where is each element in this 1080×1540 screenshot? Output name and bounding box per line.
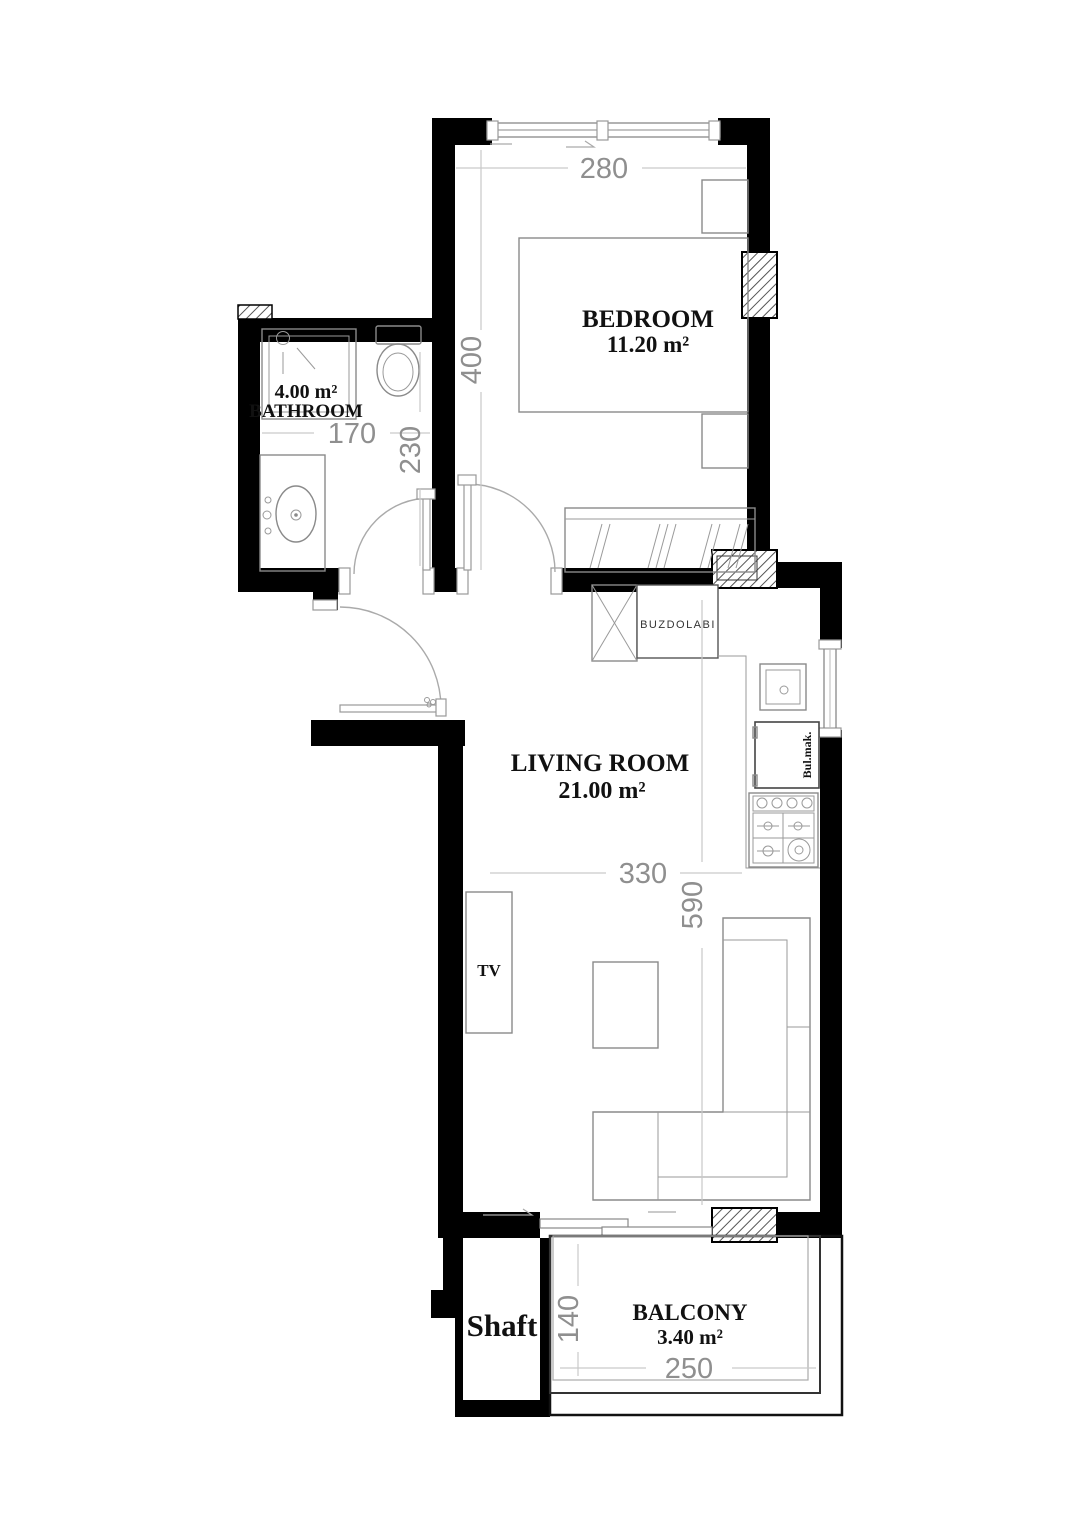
dim-balcony-width: 250 bbox=[665, 1353, 713, 1385]
dim-living-depth: 590 bbox=[677, 881, 709, 929]
stove-icon bbox=[749, 793, 818, 867]
bedroom-door-icon bbox=[457, 475, 562, 594]
floor-plan-drawing: BUZDOLABI Bul.mak. bbox=[0, 0, 1080, 1540]
fridge-label: BUZDOLABI bbox=[640, 619, 716, 631]
column-bathroom-corner bbox=[238, 305, 272, 319]
bedroom-furniture bbox=[519, 180, 755, 572]
living-room-label: LIVING ROOM bbox=[511, 750, 689, 777]
dim-living-width: 330 bbox=[619, 858, 667, 890]
dim-bedroom-depth: 400 bbox=[456, 336, 488, 384]
balcony-area: 3.40 m² bbox=[657, 1325, 723, 1349]
tv-unit-icon: TV bbox=[466, 892, 512, 1033]
coffee-table-icon bbox=[593, 962, 658, 1048]
nightstand-top-icon bbox=[702, 180, 748, 233]
kitchen: BUZDOLABI Bul.mak. bbox=[592, 585, 820, 868]
balcony-label: BALCONY bbox=[632, 1300, 747, 1325]
bathroom-area: 4.00 m² bbox=[275, 381, 338, 403]
room-labels: BEDROOM 11.20 m² 4.00 m² BATHROOM LIVING… bbox=[249, 306, 748, 1349]
dim-bedroom-width: 280 bbox=[580, 153, 628, 185]
living-furniture: TV bbox=[466, 892, 810, 1200]
living-room-area: 21.00 m² bbox=[558, 778, 645, 804]
dishwasher-icon: Bul.mak. bbox=[753, 722, 819, 788]
nightstand-bottom-icon bbox=[702, 414, 748, 468]
column-bedroom-wall bbox=[742, 252, 777, 318]
floor-plan-page: BUZDOLABI Bul.mak. bbox=[0, 0, 1080, 1540]
dishwasher-label: Bul.mak. bbox=[800, 732, 814, 779]
bedroom-label: BEDROOM bbox=[582, 306, 714, 333]
fridge-icon: BUZDOLABI bbox=[637, 585, 718, 658]
tv-label: TV bbox=[477, 961, 501, 980]
kitchen-sink-icon bbox=[760, 664, 806, 710]
sink-icon bbox=[260, 455, 325, 571]
bedroom-area: 11.20 m² bbox=[607, 332, 689, 357]
shaft-label: Shaft bbox=[467, 1308, 538, 1343]
dim-bathroom-width: 170 bbox=[328, 418, 376, 450]
bathroom-label: BATHROOM bbox=[249, 401, 363, 422]
kitchen-window-icon bbox=[819, 640, 841, 737]
closet-icon bbox=[592, 585, 637, 661]
dim-hall-depth: 230 bbox=[395, 426, 427, 474]
bedroom-window-icon bbox=[487, 121, 720, 147]
entry-door-icon bbox=[313, 600, 446, 716]
dim-balcony-depth: 140 bbox=[553, 1295, 585, 1343]
